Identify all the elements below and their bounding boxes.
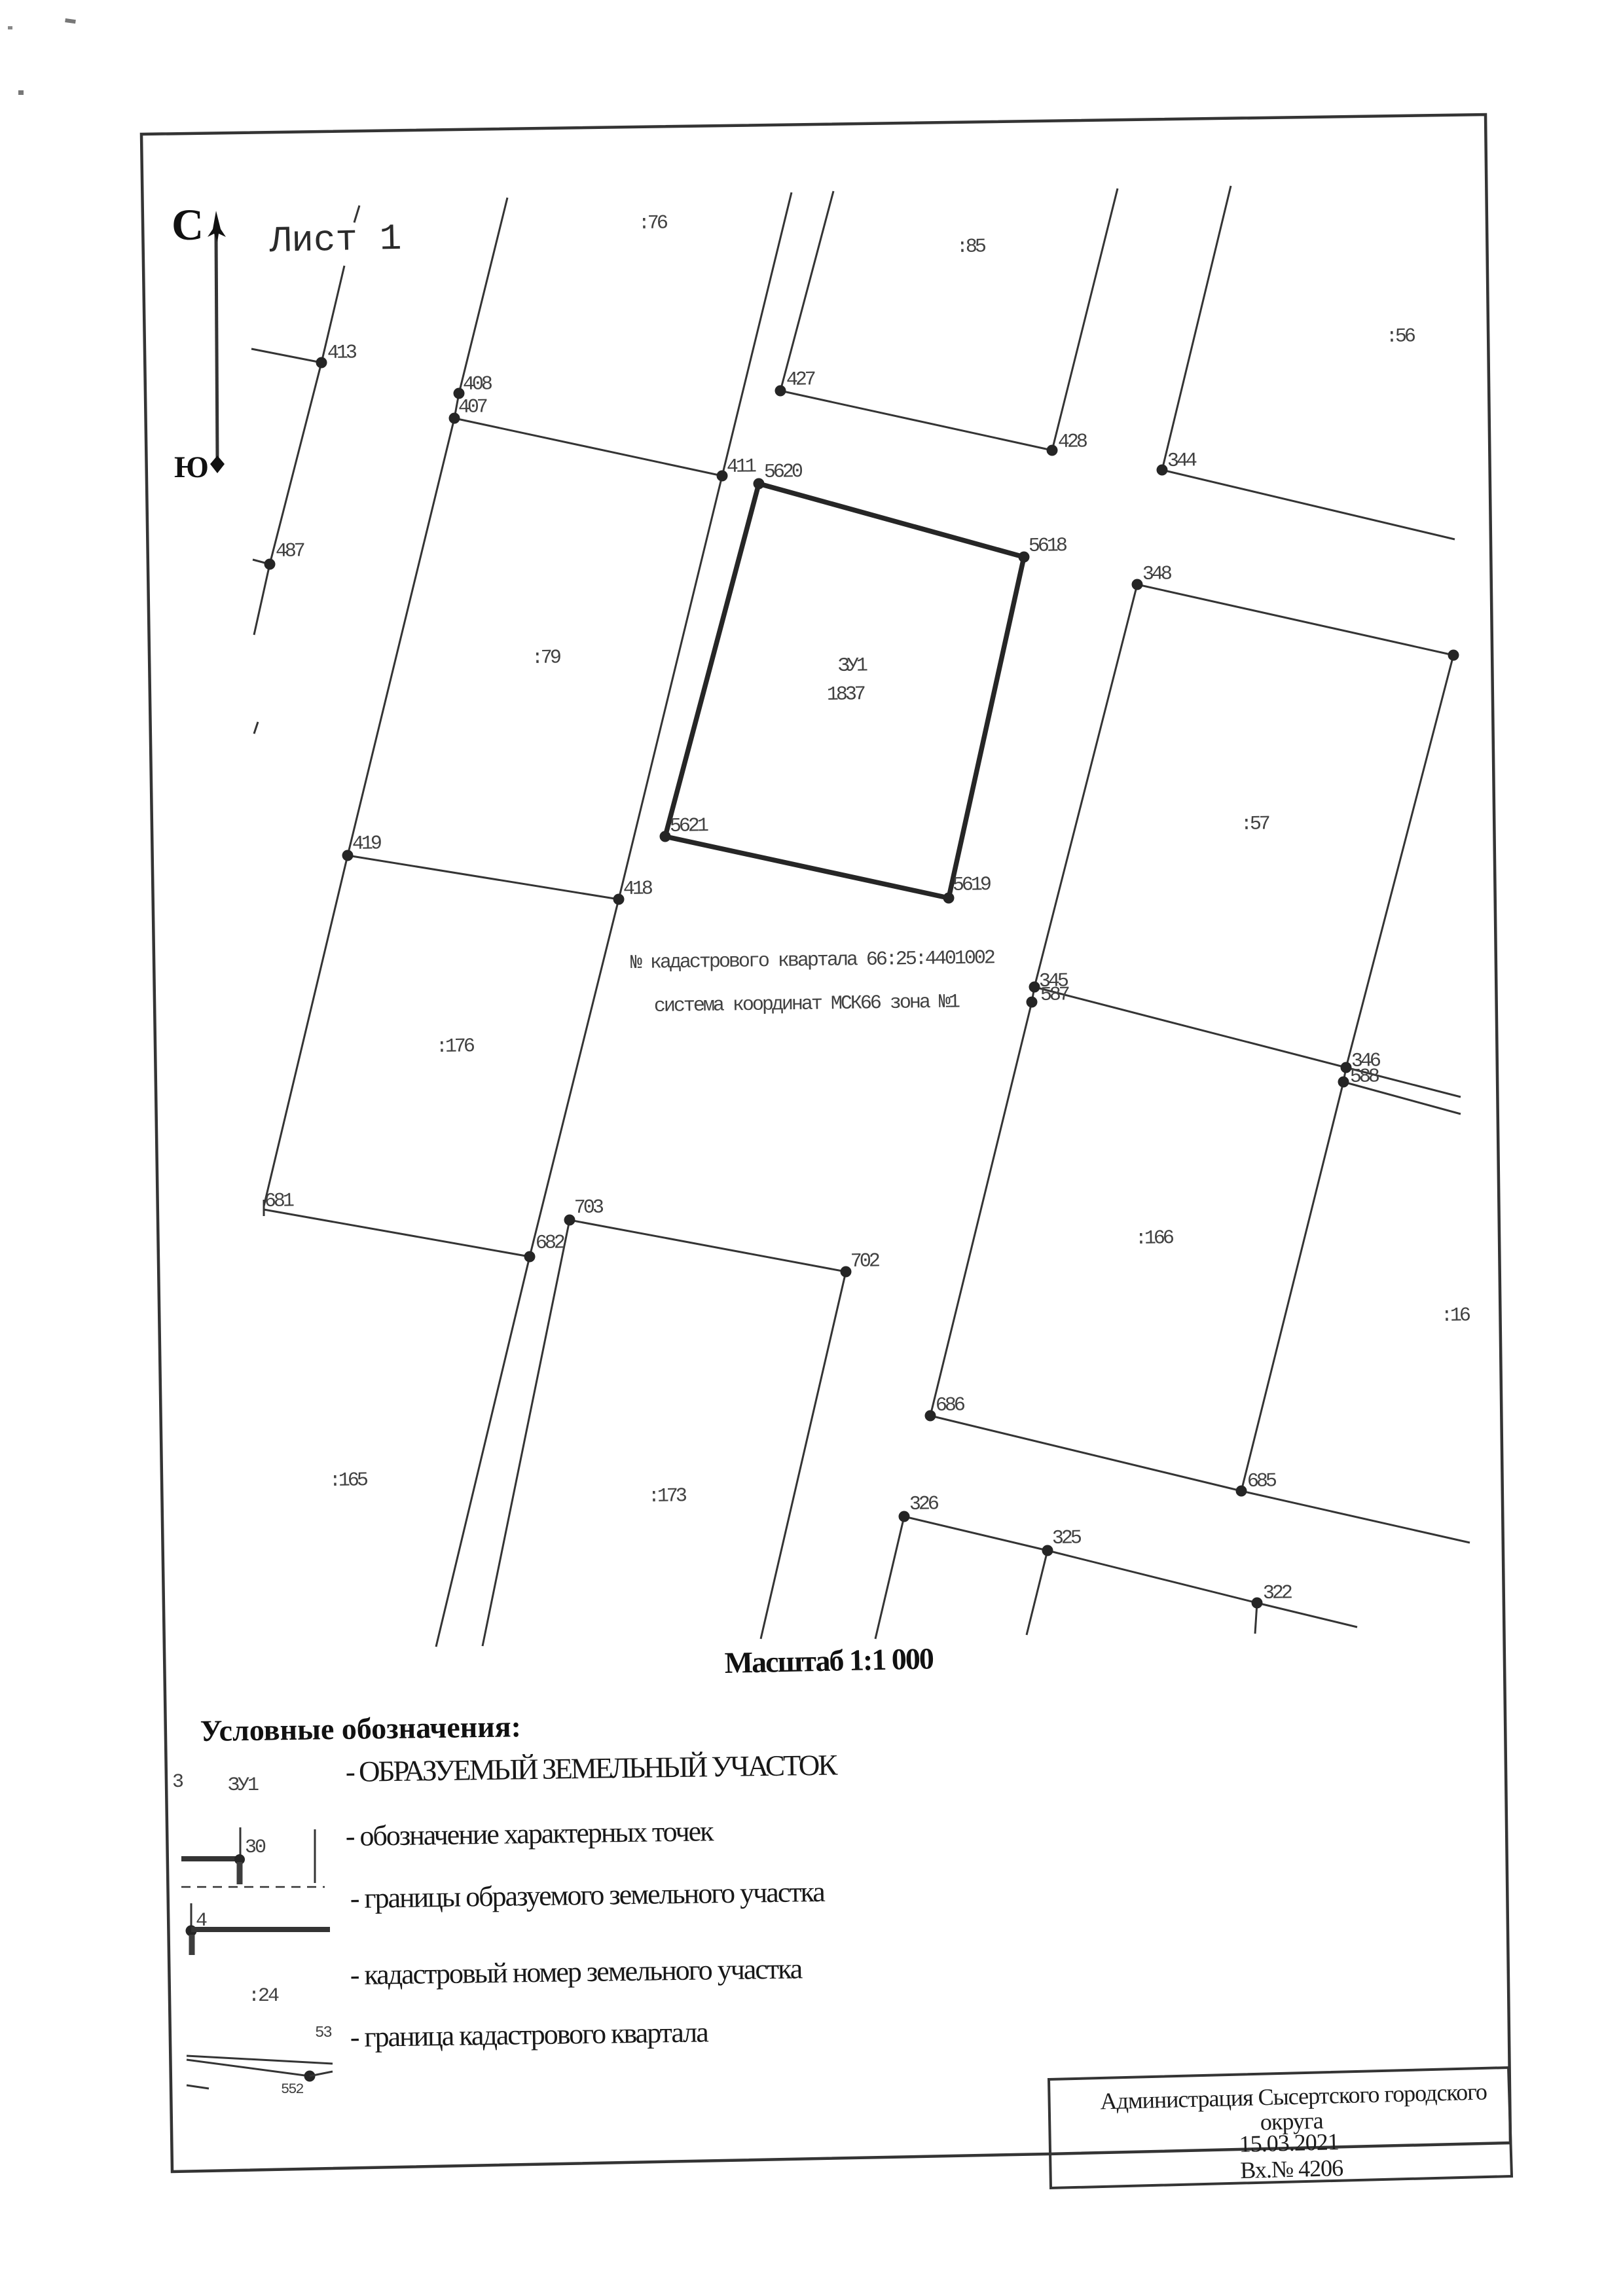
svg-text:- ОБРАЗУЕМЫЙ ЗЕМЕЛЬНЫЙ УЧАСТОК: - ОБРАЗУЕМЫЙ ЗЕМЕЛЬНЫЙ УЧАСТОК — [345, 1748, 838, 1788]
svg-text:686: 686 — [936, 1394, 965, 1417]
svg-text::57: :57 — [1241, 813, 1269, 836]
svg-text:322: 322 — [1263, 1582, 1292, 1605]
svg-text:система координат МСК66 зона №: система координат МСК66 зона №1 — [654, 991, 960, 1018]
svg-text:418: 418 — [623, 878, 653, 901]
svg-text::56: :56 — [1386, 325, 1415, 348]
svg-text:1837: 1837 — [827, 683, 865, 706]
svg-text:588: 588 — [1350, 1066, 1379, 1088]
svg-text:419: 419 — [352, 833, 381, 855]
svg-text:587: 587 — [1040, 984, 1069, 1007]
svg-text:428: 428 — [1058, 431, 1087, 454]
svg-text:- кадастровый номер земельного: - кадастровый номер земельного участка — [350, 1952, 803, 1991]
svg-text::76: :76 — [638, 212, 668, 235]
svg-text::24: :24 — [248, 1985, 279, 2007]
svg-text:Лист 1: Лист 1 — [268, 218, 402, 262]
svg-text:703: 703 — [574, 1196, 604, 1219]
svg-text:682: 682 — [536, 1232, 564, 1255]
svg-text::173: :173 — [648, 1485, 687, 1508]
svg-text:5621: 5621 — [670, 815, 708, 838]
svg-text:408: 408 — [463, 373, 492, 396]
svg-text::16: :16 — [1441, 1304, 1470, 1327]
svg-text:30: 30 — [245, 1837, 266, 1859]
svg-text:487: 487 — [276, 540, 304, 563]
svg-text:326: 326 — [909, 1493, 939, 1516]
svg-text:- границы образуемого земельно: - границы образуемого земельного участка — [350, 1876, 825, 1914]
svg-text:552: 552 — [281, 2081, 303, 2098]
svg-text::176: :176 — [436, 1035, 475, 1058]
svg-text:Масштаб 1:1 000: Масштаб 1:1 000 — [724, 1641, 934, 1679]
svg-text:- граница кадастрового квартал: - граница кадастрового квартала — [350, 2016, 708, 2053]
svg-text:53: 53 — [315, 2024, 331, 2042]
svg-text:325: 325 — [1052, 1527, 1082, 1550]
svg-text::79: :79 — [532, 647, 560, 670]
svg-text:681: 681 — [264, 1190, 294, 1213]
svg-text::85: :85 — [957, 236, 986, 259]
svg-text:407: 407 — [458, 396, 487, 419]
svg-text:348: 348 — [1142, 563, 1172, 586]
svg-text:702: 702 — [850, 1250, 879, 1273]
svg-text:411: 411 — [727, 456, 756, 478]
svg-text:5618: 5618 — [1029, 535, 1067, 558]
svg-text:15.03.2021: 15.03.2021 — [1239, 2128, 1339, 2157]
svg-text:Ю: Ю — [174, 450, 209, 484]
svg-text:- обозначение характерных точе: - обозначение характерных точек — [345, 1815, 714, 1852]
svg-text:5619: 5619 — [953, 874, 991, 897]
svg-text:Условные обозначения:: Условные обозначения: — [200, 1710, 521, 1748]
svg-text::165: :165 — [329, 1469, 368, 1492]
svg-text:С: С — [172, 200, 204, 249]
svg-text:ЗУ1: ЗУ1 — [228, 1774, 259, 1797]
svg-text:5620: 5620 — [764, 461, 803, 484]
svg-text:№ кадастрового квартала 66:25:: № кадастрового квартала 66:25:4401002 — [630, 947, 995, 975]
svg-text:3: 3 — [172, 1771, 184, 1793]
svg-text::166: :166 — [1135, 1227, 1174, 1250]
svg-text:Вх.№ 4206: Вх.№ 4206 — [1240, 2155, 1343, 2183]
svg-text:413: 413 — [327, 342, 357, 365]
svg-text:ЗУ1: ЗУ1 — [838, 655, 867, 677]
svg-text:427: 427 — [786, 368, 815, 391]
svg-text:685: 685 — [1247, 1470, 1277, 1493]
svg-text:344: 344 — [1167, 450, 1197, 473]
